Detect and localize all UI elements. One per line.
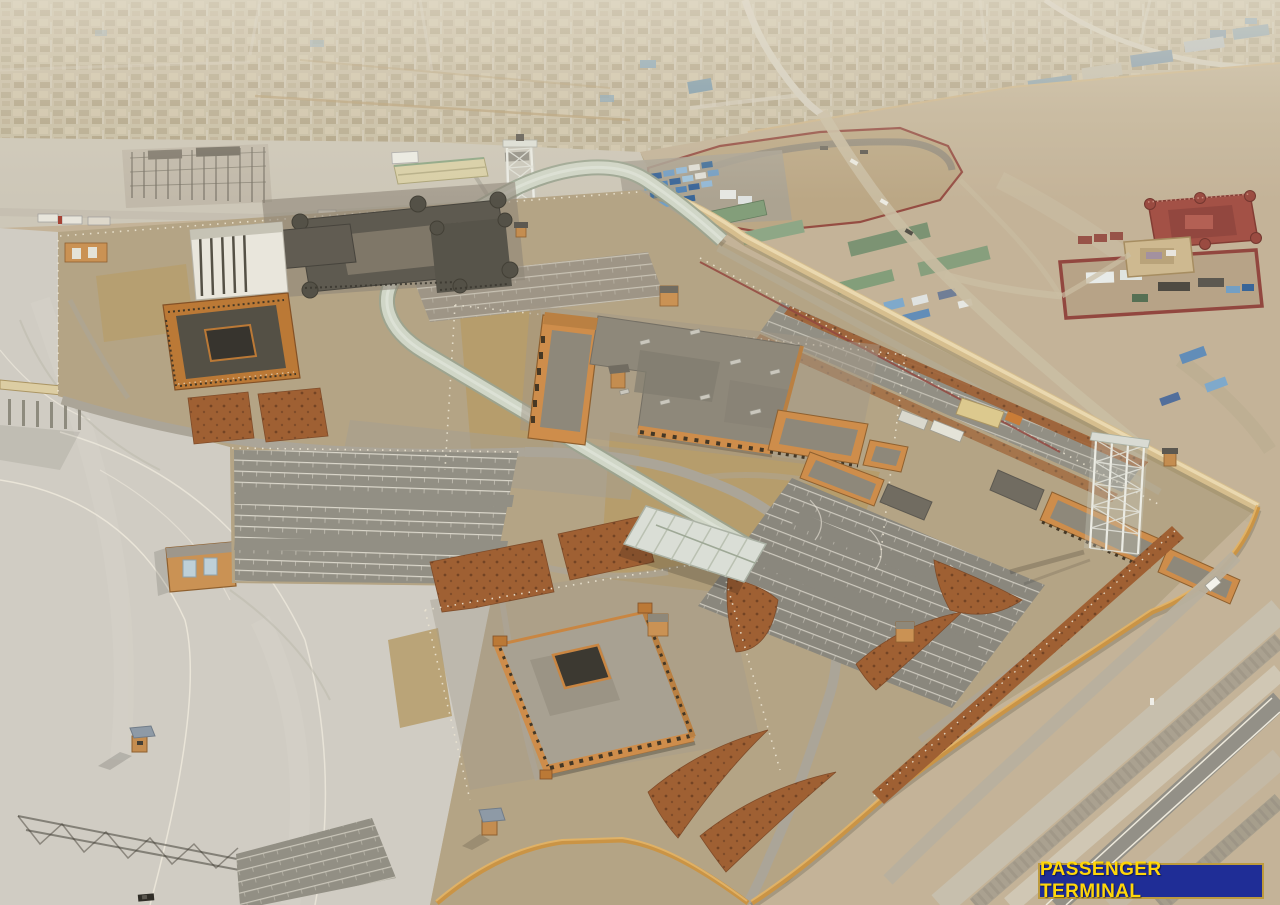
aerial-photo-border-terminal: PASSENGER TERMINAL [0,0,1280,905]
aerial-scene [0,0,1280,905]
caption-passenger-terminal: PASSENGER TERMINAL [1038,863,1264,899]
warm-tint [0,0,1280,905]
